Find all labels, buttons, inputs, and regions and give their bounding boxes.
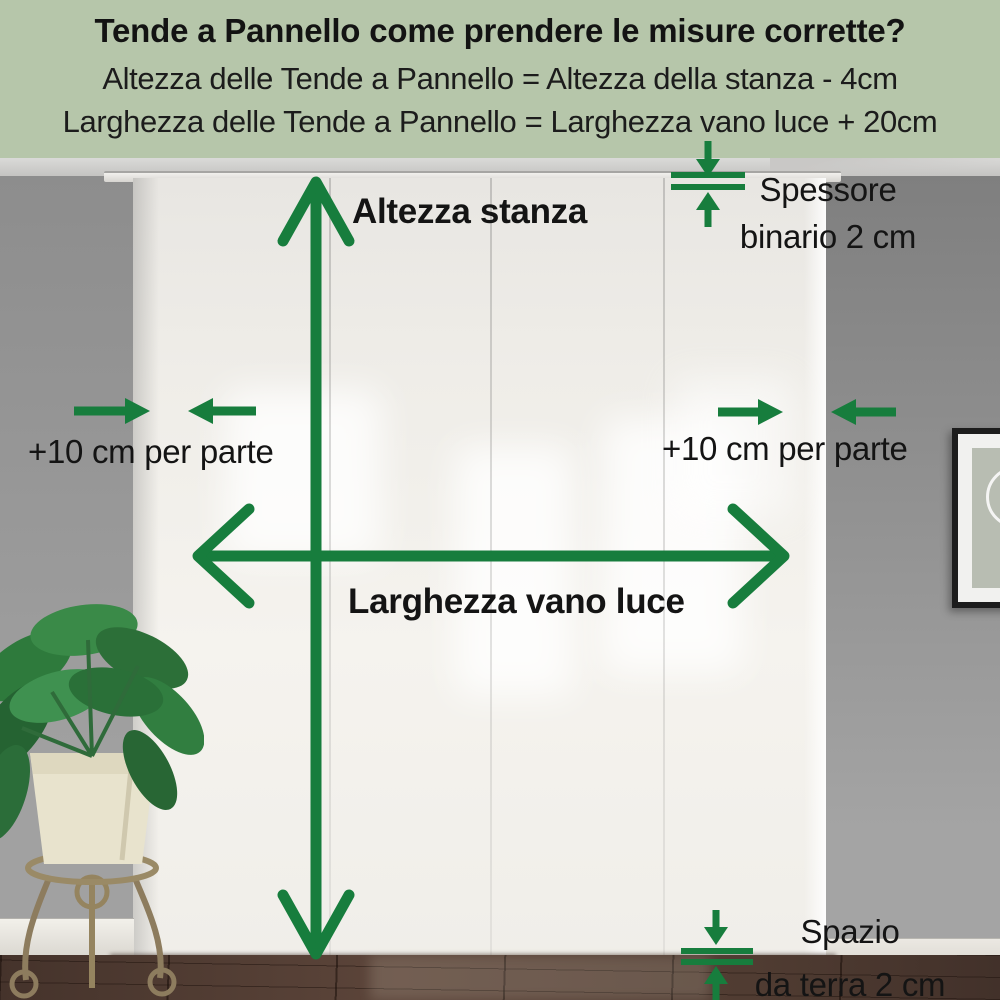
- floor-reflection: [370, 955, 710, 1000]
- side-allowance-right-label: +10 cm per parte: [662, 430, 908, 468]
- curtain-right-edge-light: [804, 178, 826, 958]
- rail-thickness-label-line1: Spessore: [722, 166, 934, 213]
- panel-curtains: [133, 178, 826, 958]
- formula-width: Larghezza delle Tende a Pannello = Largh…: [0, 100, 1000, 143]
- frame-artwork: [972, 448, 1000, 588]
- window-glow: [225, 390, 381, 560]
- page-title: Tende a Pannello come prendere le misure…: [0, 0, 1000, 50]
- floor-clearance-label-line2: da terra 2 cm: [738, 958, 962, 1000]
- window-glow: [455, 446, 573, 696]
- floor-clearance-label: Spazio da terra 2 cm: [738, 905, 962, 1000]
- header-band: Tende a Pannello come prendere le misure…: [0, 0, 1000, 158]
- room-photo: [0, 158, 1000, 1000]
- rail-thickness-label: Spessore binario 2 cm: [722, 166, 934, 260]
- formula-height: Altezza delle Tende a Pannello = Altezza…: [0, 57, 1000, 100]
- picture-frame: [952, 428, 1000, 608]
- plant-on-stand: [0, 588, 204, 1000]
- plant-stand: [12, 854, 174, 996]
- panel-seam: [663, 178, 665, 958]
- window-width-label: Larghezza vano luce: [348, 582, 685, 622]
- floor-clearance-label-line1: Spazio: [738, 905, 962, 958]
- side-allowance-left-label: +10 cm per parte: [28, 433, 274, 471]
- curtain-measure-infographic: Tende a Pannello come prendere le misure…: [0, 0, 1000, 1000]
- room-height-label: Altezza stanza: [352, 192, 587, 232]
- circle-art-icon: [986, 466, 1000, 528]
- panel-seam: [490, 178, 492, 958]
- panel-seam: [329, 178, 331, 958]
- rail-thickness-label-line2: binario 2 cm: [722, 213, 934, 260]
